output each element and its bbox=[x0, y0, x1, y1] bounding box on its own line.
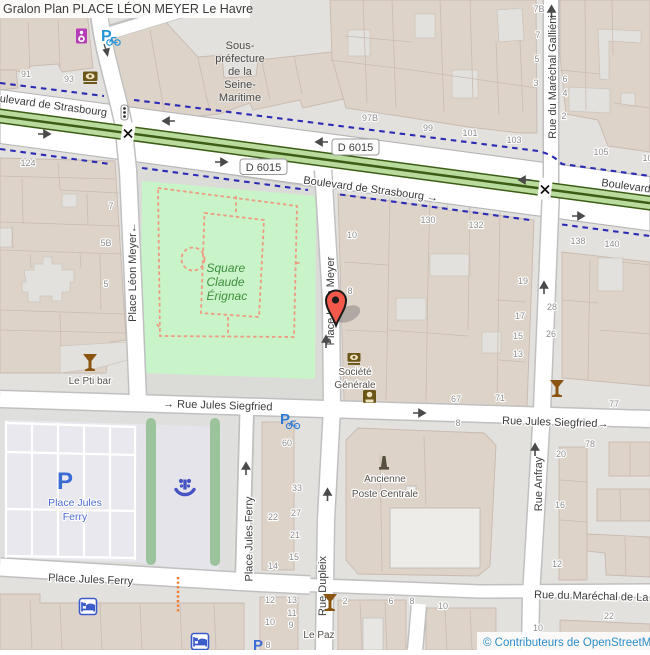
svg-text:22: 22 bbox=[604, 611, 614, 621]
svg-text:27: 27 bbox=[291, 508, 301, 518]
svg-text:103: 103 bbox=[506, 135, 521, 145]
svg-text:Le Pti bar: Le Pti bar bbox=[69, 376, 112, 387]
svg-text:Société: Société bbox=[338, 367, 372, 378]
svg-text:8: 8 bbox=[409, 596, 414, 606]
svg-text:Rue du Maréchal Galliéni: Rue du Maréchal Galliéni bbox=[547, 15, 559, 139]
svg-text:Sous-: Sous- bbox=[226, 40, 255, 52]
svg-text:Gralon Plan PLACE LÉON MEYER L: Gralon Plan PLACE LÉON MEYER Le Havre bbox=[3, 1, 253, 16]
svg-text:P: P bbox=[253, 637, 263, 650]
svg-text:107: 107 bbox=[642, 153, 650, 163]
svg-text:8: 8 bbox=[265, 640, 270, 650]
svg-text:140: 140 bbox=[604, 239, 619, 249]
svg-text:D 6015: D 6015 bbox=[246, 162, 281, 174]
svg-text:15: 15 bbox=[513, 331, 523, 341]
svg-text:Ancienne: Ancienne bbox=[364, 474, 406, 485]
svg-text:Ferry: Ferry bbox=[63, 511, 88, 523]
svg-text:8: 8 bbox=[455, 418, 460, 428]
svg-text:7: 7 bbox=[535, 30, 540, 40]
svg-text:91: 91 bbox=[21, 69, 31, 79]
svg-text:10: 10 bbox=[265, 617, 275, 627]
svg-text:77: 77 bbox=[609, 399, 619, 409]
svg-text:5B: 5B bbox=[100, 238, 111, 248]
svg-text:19: 19 bbox=[518, 276, 528, 286]
svg-text:16: 16 bbox=[555, 500, 565, 510]
svg-text:Place Léon Meyer←: Place Léon Meyer← bbox=[127, 222, 139, 322]
svg-text:14: 14 bbox=[268, 561, 278, 571]
svg-text:132: 132 bbox=[468, 220, 483, 230]
svg-text:28: 28 bbox=[547, 302, 557, 312]
svg-text:D 6015: D 6015 bbox=[338, 142, 373, 154]
svg-text:101: 101 bbox=[462, 128, 477, 138]
svg-text:138: 138 bbox=[570, 236, 585, 246]
svg-text:Rue Anfray: Rue Anfray bbox=[533, 456, 545, 511]
svg-text:Érignac: Érignac bbox=[207, 288, 248, 303]
svg-text:8: 8 bbox=[347, 286, 352, 296]
svg-text:11: 11 bbox=[287, 608, 296, 618]
svg-text:71: 71 bbox=[495, 393, 505, 403]
svg-text:P: P bbox=[280, 411, 290, 428]
svg-text:de la: de la bbox=[228, 66, 253, 78]
svg-text:10: 10 bbox=[438, 601, 448, 611]
svg-text:6: 6 bbox=[388, 596, 393, 606]
svg-text:5: 5 bbox=[534, 54, 539, 64]
svg-text:21: 21 bbox=[290, 530, 300, 540]
svg-text:67: 67 bbox=[451, 394, 461, 404]
svg-text:12: 12 bbox=[265, 595, 275, 605]
svg-text:93: 93 bbox=[64, 74, 74, 84]
svg-text:7: 7 bbox=[108, 201, 113, 211]
svg-text:13: 13 bbox=[513, 349, 523, 359]
svg-text:4: 4 bbox=[562, 88, 567, 98]
svg-text:Claude: Claude bbox=[207, 275, 245, 289]
svg-text:130: 130 bbox=[420, 215, 435, 225]
svg-text:Poste Centrale: Poste Centrale bbox=[352, 489, 419, 500]
svg-text:Place Jules Ferry: Place Jules Ferry bbox=[244, 496, 256, 581]
svg-text:Square: Square bbox=[207, 261, 246, 275]
svg-text:Maritime: Maritime bbox=[219, 92, 261, 104]
svg-text:Rue Dupleix: Rue Dupleix bbox=[317, 556, 329, 616]
svg-text:10: 10 bbox=[347, 230, 357, 240]
svg-text:Générale: Générale bbox=[334, 380, 376, 391]
svg-text:60: 60 bbox=[282, 438, 292, 448]
svg-text:33: 33 bbox=[292, 483, 302, 493]
svg-text:2: 2 bbox=[561, 111, 566, 121]
svg-text:6: 6 bbox=[562, 74, 567, 84]
svg-text:3: 3 bbox=[533, 78, 538, 88]
svg-text:Le Paz: Le Paz bbox=[303, 630, 334, 641]
svg-text:22: 22 bbox=[268, 512, 278, 522]
svg-text:2: 2 bbox=[342, 596, 347, 606]
svg-text:97B: 97B bbox=[362, 113, 378, 123]
svg-text:7B: 7B bbox=[533, 4, 544, 14]
svg-text:12: 12 bbox=[552, 559, 562, 569]
svg-text:20: 20 bbox=[556, 449, 566, 459]
svg-text:Seine-: Seine- bbox=[224, 79, 256, 91]
svg-text:5: 5 bbox=[103, 279, 108, 289]
svg-text:15: 15 bbox=[289, 552, 299, 562]
svg-text:99: 99 bbox=[423, 123, 433, 133]
svg-text:78: 78 bbox=[585, 439, 595, 449]
svg-text:© Contributeurs de OpenStreetM: © Contributeurs de OpenStreetMap bbox=[483, 637, 650, 649]
svg-text:10: 10 bbox=[533, 623, 543, 633]
svg-text:105: 105 bbox=[593, 147, 608, 157]
svg-text:9: 9 bbox=[288, 620, 293, 630]
svg-text:17: 17 bbox=[515, 311, 525, 321]
svg-text:124: 124 bbox=[20, 158, 35, 168]
svg-text:préfecture: préfecture bbox=[215, 53, 265, 65]
svg-text:Place Jules: Place Jules bbox=[48, 497, 102, 509]
svg-text:P: P bbox=[57, 468, 73, 495]
svg-text:26: 26 bbox=[546, 329, 556, 339]
svg-text:13: 13 bbox=[287, 595, 297, 605]
